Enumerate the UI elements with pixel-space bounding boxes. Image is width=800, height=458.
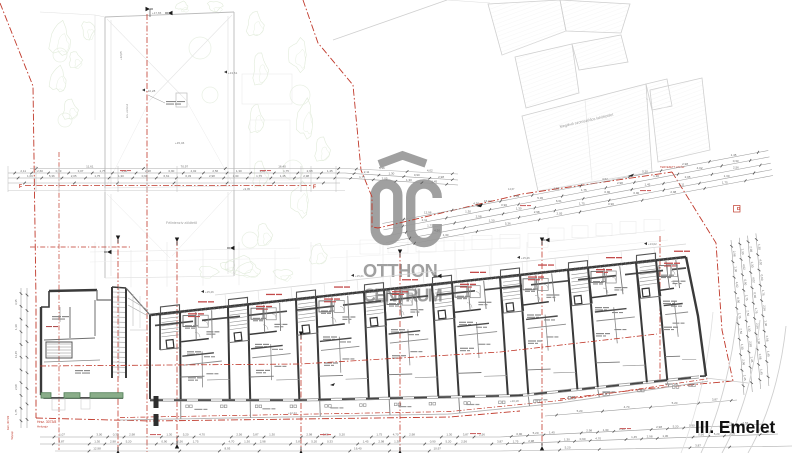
svg-text:1,75: 1,75 xyxy=(99,169,105,173)
svg-text:14,67: 14,67 xyxy=(508,187,515,191)
svg-text:1,30: 1,30 xyxy=(465,210,471,214)
svg-text:4,70: 4,70 xyxy=(624,405,630,409)
svg-text:2,98: 2,98 xyxy=(307,169,313,173)
svg-text:1,45: 1,45 xyxy=(363,440,369,444)
svg-text:2,56: 2,56 xyxy=(236,433,242,437)
svg-text:2,56: 2,56 xyxy=(762,305,767,311)
svg-text:1,45: 1,45 xyxy=(631,435,637,439)
svg-text:3,35: 3,35 xyxy=(14,299,18,305)
svg-text:1,30: 1,30 xyxy=(489,218,495,222)
svg-text:1,30: 1,30 xyxy=(740,344,745,350)
svg-text:2,98: 2,98 xyxy=(748,341,753,347)
svg-text:1,30: 1,30 xyxy=(388,172,394,176)
svg-text:4,02: 4,02 xyxy=(751,277,756,283)
svg-text:1,45: 1,45 xyxy=(743,375,748,381)
svg-text:5,36: 5,36 xyxy=(537,196,543,200)
svg-text:4,02: 4,02 xyxy=(427,168,433,172)
svg-text:1,75: 1,75 xyxy=(722,180,728,184)
svg-text:1,75: 1,75 xyxy=(193,440,199,444)
svg-text:0,90: 0,90 xyxy=(501,203,507,207)
svg-text:4,70: 4,70 xyxy=(393,433,399,437)
svg-text:1,45: 1,45 xyxy=(327,169,333,173)
svg-text:0,90: 0,90 xyxy=(604,190,610,194)
svg-text:2,98: 2,98 xyxy=(306,433,312,437)
svg-text:5,20: 5,20 xyxy=(642,170,648,174)
svg-text:2,05: 2,05 xyxy=(556,212,562,216)
svg-text:1,75: 1,75 xyxy=(761,290,766,296)
svg-text:3,00: 3,00 xyxy=(96,433,102,437)
svg-text:11,61: 11,61 xyxy=(86,164,94,168)
svg-text:1,30: 1,30 xyxy=(394,440,400,444)
svg-text:6,61: 6,61 xyxy=(556,199,562,203)
svg-text:2,56: 2,56 xyxy=(461,440,467,444)
svg-text:4,50: 4,50 xyxy=(434,229,440,233)
svg-text:16,02: 16,02 xyxy=(484,199,492,203)
svg-text:4,02: 4,02 xyxy=(758,259,763,265)
svg-text:1,75: 1,75 xyxy=(14,409,18,415)
svg-text:0,90: 0,90 xyxy=(168,169,174,173)
svg-text:+15,46: +15,46 xyxy=(521,256,530,260)
svg-text:1,30: 1,30 xyxy=(516,207,522,211)
svg-text:Hrsz. 3073/8: Hrsz. 3073/8 xyxy=(37,420,56,424)
svg-text:2,98: 2,98 xyxy=(409,433,415,437)
svg-text:5,36: 5,36 xyxy=(505,222,511,226)
svg-text:1,30: 1,30 xyxy=(269,433,275,437)
svg-text:+12,44: +12,44 xyxy=(288,411,297,415)
svg-text:+10,18: +10,18 xyxy=(510,399,519,403)
svg-text:5,36: 5,36 xyxy=(49,174,55,178)
svg-text:0,90: 0,90 xyxy=(736,297,741,303)
svg-text:1,30: 1,30 xyxy=(747,326,752,332)
svg-text:1,30: 1,30 xyxy=(757,244,762,250)
svg-text:Helyrajz: Helyrajz xyxy=(37,425,48,429)
svg-text:F: F xyxy=(313,185,316,191)
svg-text:0,33: 0,33 xyxy=(185,174,191,178)
svg-text:4,70: 4,70 xyxy=(228,440,234,444)
svg-text:2,98: 2,98 xyxy=(303,174,309,178)
svg-text:0,33: 0,33 xyxy=(733,159,739,163)
svg-text:2,98: 2,98 xyxy=(14,384,18,390)
svg-text:6,61: 6,61 xyxy=(163,174,169,178)
svg-text:2,98: 2,98 xyxy=(145,169,151,173)
svg-text:3,87: 3,87 xyxy=(253,433,259,437)
svg-text:4,70: 4,70 xyxy=(595,436,601,440)
svg-text:0,90: 0,90 xyxy=(633,191,639,195)
svg-text:4,70: 4,70 xyxy=(199,433,205,437)
svg-text:5,20: 5,20 xyxy=(577,409,583,413)
svg-text:+17,65: +17,65 xyxy=(152,11,162,15)
svg-text:4,50: 4,50 xyxy=(473,202,479,206)
svg-text:0,90: 0,90 xyxy=(580,437,586,441)
svg-text:1,30: 1,30 xyxy=(166,433,172,437)
svg-text:2,98: 2,98 xyxy=(749,246,754,252)
svg-text:0,90: 0,90 xyxy=(430,440,436,444)
svg-text:Kert, 3073/9: Kert, 3073/9 xyxy=(6,415,10,430)
svg-text:+10,28: +10,28 xyxy=(146,89,156,93)
svg-text:terv. védőcső: terv. védőcső xyxy=(126,103,129,118)
svg-text:2,98: 2,98 xyxy=(528,439,534,443)
svg-text:1,30: 1,30 xyxy=(233,174,239,178)
svg-text:0,90: 0,90 xyxy=(414,173,420,177)
svg-text:5,20: 5,20 xyxy=(126,440,132,444)
svg-text:2,98: 2,98 xyxy=(656,425,662,429)
svg-text:0,90: 0,90 xyxy=(516,432,522,436)
svg-text:+12,05: +12,05 xyxy=(119,51,123,60)
svg-text:5,20: 5,20 xyxy=(673,424,679,428)
svg-text:1,75: 1,75 xyxy=(581,188,587,192)
svg-text:2,98: 2,98 xyxy=(476,214,482,218)
svg-text:+15,21: +15,21 xyxy=(355,274,364,278)
svg-text:1,45: 1,45 xyxy=(280,174,286,178)
svg-text:2,98: 2,98 xyxy=(209,174,215,178)
svg-text:11,45: 11,45 xyxy=(14,351,18,358)
svg-text:4,02: 4,02 xyxy=(735,282,740,288)
svg-text:3,87: 3,87 xyxy=(497,440,503,444)
svg-text:2,98: 2,98 xyxy=(438,175,444,179)
svg-text:2,98: 2,98 xyxy=(378,440,384,444)
svg-text:2,05: 2,05 xyxy=(71,174,77,178)
svg-text:1,45: 1,45 xyxy=(549,430,555,434)
svg-text:+15,46: +15,46 xyxy=(205,290,214,294)
svg-text:1,30: 1,30 xyxy=(733,266,738,272)
svg-text:Félintenzív zöldtető: Félintenzív zöldtető xyxy=(166,221,197,225)
svg-text:1,30: 1,30 xyxy=(244,440,250,444)
svg-text:2,98: 2,98 xyxy=(732,251,737,257)
svg-text:4,02: 4,02 xyxy=(742,264,747,270)
svg-text:1,45: 1,45 xyxy=(431,179,437,183)
svg-text:1,30: 1,30 xyxy=(406,178,412,182)
svg-text:1,75: 1,75 xyxy=(754,308,759,314)
svg-text:1,75: 1,75 xyxy=(579,201,585,205)
svg-text:2,60: 2,60 xyxy=(37,169,43,173)
svg-text:1,75: 1,75 xyxy=(359,175,365,179)
svg-text:1,45: 1,45 xyxy=(759,369,764,375)
svg-text:1,45: 1,45 xyxy=(766,351,771,357)
svg-text:0,90: 0,90 xyxy=(743,279,748,285)
svg-text:3,87: 3,87 xyxy=(695,443,701,447)
svg-text:2,05: 2,05 xyxy=(685,175,691,179)
svg-text:5,20: 5,20 xyxy=(339,433,345,437)
svg-text:3,87: 3,87 xyxy=(463,433,469,437)
svg-text:2,98: 2,98 xyxy=(765,335,770,341)
svg-text:1,30: 1,30 xyxy=(603,428,609,432)
svg-text:2,11: 2,11 xyxy=(20,169,26,173)
svg-text:+13,02: +13,02 xyxy=(648,242,657,246)
svg-text:16,40: 16,40 xyxy=(278,164,286,168)
svg-text:Helyrajz: Helyrajz xyxy=(11,431,14,440)
svg-text:1,30: 1,30 xyxy=(236,169,242,173)
svg-text:2,11: 2,11 xyxy=(364,170,370,174)
svg-text:2,56: 2,56 xyxy=(177,440,183,444)
svg-text:1,75: 1,75 xyxy=(737,313,742,319)
svg-text:0,33: 0,33 xyxy=(113,433,119,437)
svg-text:1,30: 1,30 xyxy=(653,174,659,178)
svg-text:1,30: 1,30 xyxy=(446,433,452,437)
svg-text:2,98: 2,98 xyxy=(647,435,653,439)
svg-text:5,20: 5,20 xyxy=(183,433,189,437)
svg-text:5,20: 5,20 xyxy=(533,431,539,435)
svg-text:1,75: 1,75 xyxy=(256,174,262,178)
svg-text:2,98: 2,98 xyxy=(129,433,135,437)
svg-text:3,87: 3,87 xyxy=(712,398,718,402)
svg-text:2,98: 2,98 xyxy=(260,440,266,444)
svg-text:4,02: 4,02 xyxy=(190,169,196,173)
svg-text:1,30: 1,30 xyxy=(94,440,100,444)
svg-text:1,75: 1,75 xyxy=(427,223,433,227)
svg-text:1,45: 1,45 xyxy=(644,182,650,186)
svg-text:+13,61: +13,61 xyxy=(228,71,238,75)
svg-text:2,56: 2,56 xyxy=(733,166,739,170)
svg-text:2,11: 2,11 xyxy=(422,218,428,222)
svg-text:0,90: 0,90 xyxy=(608,202,614,206)
svg-text:1,30: 1,30 xyxy=(564,438,570,442)
svg-text:1,30: 1,30 xyxy=(740,248,745,254)
svg-text:1,75: 1,75 xyxy=(513,439,519,443)
svg-text:5,36: 5,36 xyxy=(379,166,385,170)
svg-text:1,30: 1,30 xyxy=(443,233,449,237)
svg-text:2,56: 2,56 xyxy=(739,328,744,334)
svg-text:0,90: 0,90 xyxy=(760,274,765,280)
svg-text:70,97: 70,97 xyxy=(181,164,189,168)
svg-text:1,75: 1,75 xyxy=(376,433,382,437)
svg-text:2,98: 2,98 xyxy=(617,181,623,185)
svg-text:2,56: 2,56 xyxy=(746,310,751,316)
svg-text:16,40: 16,40 xyxy=(354,447,362,451)
svg-text:0,33: 0,33 xyxy=(56,169,62,173)
svg-text:2,98: 2,98 xyxy=(534,210,540,214)
svg-text:1,75: 1,75 xyxy=(94,174,100,178)
svg-text:2,98: 2,98 xyxy=(110,440,116,444)
svg-text:12,98: 12,98 xyxy=(424,211,432,215)
svg-text:4,67: 4,67 xyxy=(602,177,608,181)
svg-text:1,30: 1,30 xyxy=(764,320,769,326)
svg-text:1,07: 1,07 xyxy=(59,433,65,437)
svg-text:0,33: 0,33 xyxy=(327,440,333,444)
svg-text:0,90: 0,90 xyxy=(753,292,758,298)
svg-text:3,87: 3,87 xyxy=(296,440,302,444)
svg-text:1,09: 1,09 xyxy=(27,174,33,178)
svg-text:2,56: 2,56 xyxy=(212,169,218,173)
svg-text:III. Emelet: III. Emelet xyxy=(695,417,776,437)
svg-text:2,98: 2,98 xyxy=(682,162,688,166)
svg-text:1,50: 1,50 xyxy=(553,186,559,190)
svg-text:2,98: 2,98 xyxy=(741,359,746,365)
svg-text:5,20: 5,20 xyxy=(672,401,678,405)
svg-text:1,30: 1,30 xyxy=(662,434,668,438)
svg-text:1,45: 1,45 xyxy=(731,153,737,157)
svg-text:5,20: 5,20 xyxy=(445,440,451,444)
svg-text:1,75: 1,75 xyxy=(283,169,289,173)
svg-text:F: F xyxy=(19,184,22,190)
svg-text:2,11: 2,11 xyxy=(679,183,685,187)
svg-text:1,75: 1,75 xyxy=(744,295,749,301)
svg-text:2,98: 2,98 xyxy=(758,354,763,360)
svg-text:6,95: 6,95 xyxy=(513,194,519,198)
svg-text:2,98: 2,98 xyxy=(586,429,592,433)
svg-text:1,30: 1,30 xyxy=(118,174,124,178)
svg-text:1,30: 1,30 xyxy=(724,174,730,178)
svg-text:4,02: 4,02 xyxy=(697,166,703,170)
svg-text:0,90: 0,90 xyxy=(161,440,167,444)
svg-text:8,93: 8,93 xyxy=(224,447,230,451)
svg-text:3,07: 3,07 xyxy=(78,169,84,173)
svg-text:10,97: 10,97 xyxy=(433,447,441,451)
svg-text:5,20: 5,20 xyxy=(565,446,571,450)
svg-text:2,05: 2,05 xyxy=(382,176,388,180)
svg-text:+15,46: +15,46 xyxy=(175,141,185,145)
svg-text:12,98: 12,98 xyxy=(93,447,101,451)
svg-text:1,30: 1,30 xyxy=(14,324,18,330)
svg-text:5,20: 5,20 xyxy=(311,440,317,444)
svg-text:2,98: 2,98 xyxy=(670,190,676,194)
svg-text:1,30: 1,30 xyxy=(750,261,755,267)
svg-text:3,87: 3,87 xyxy=(58,440,64,444)
